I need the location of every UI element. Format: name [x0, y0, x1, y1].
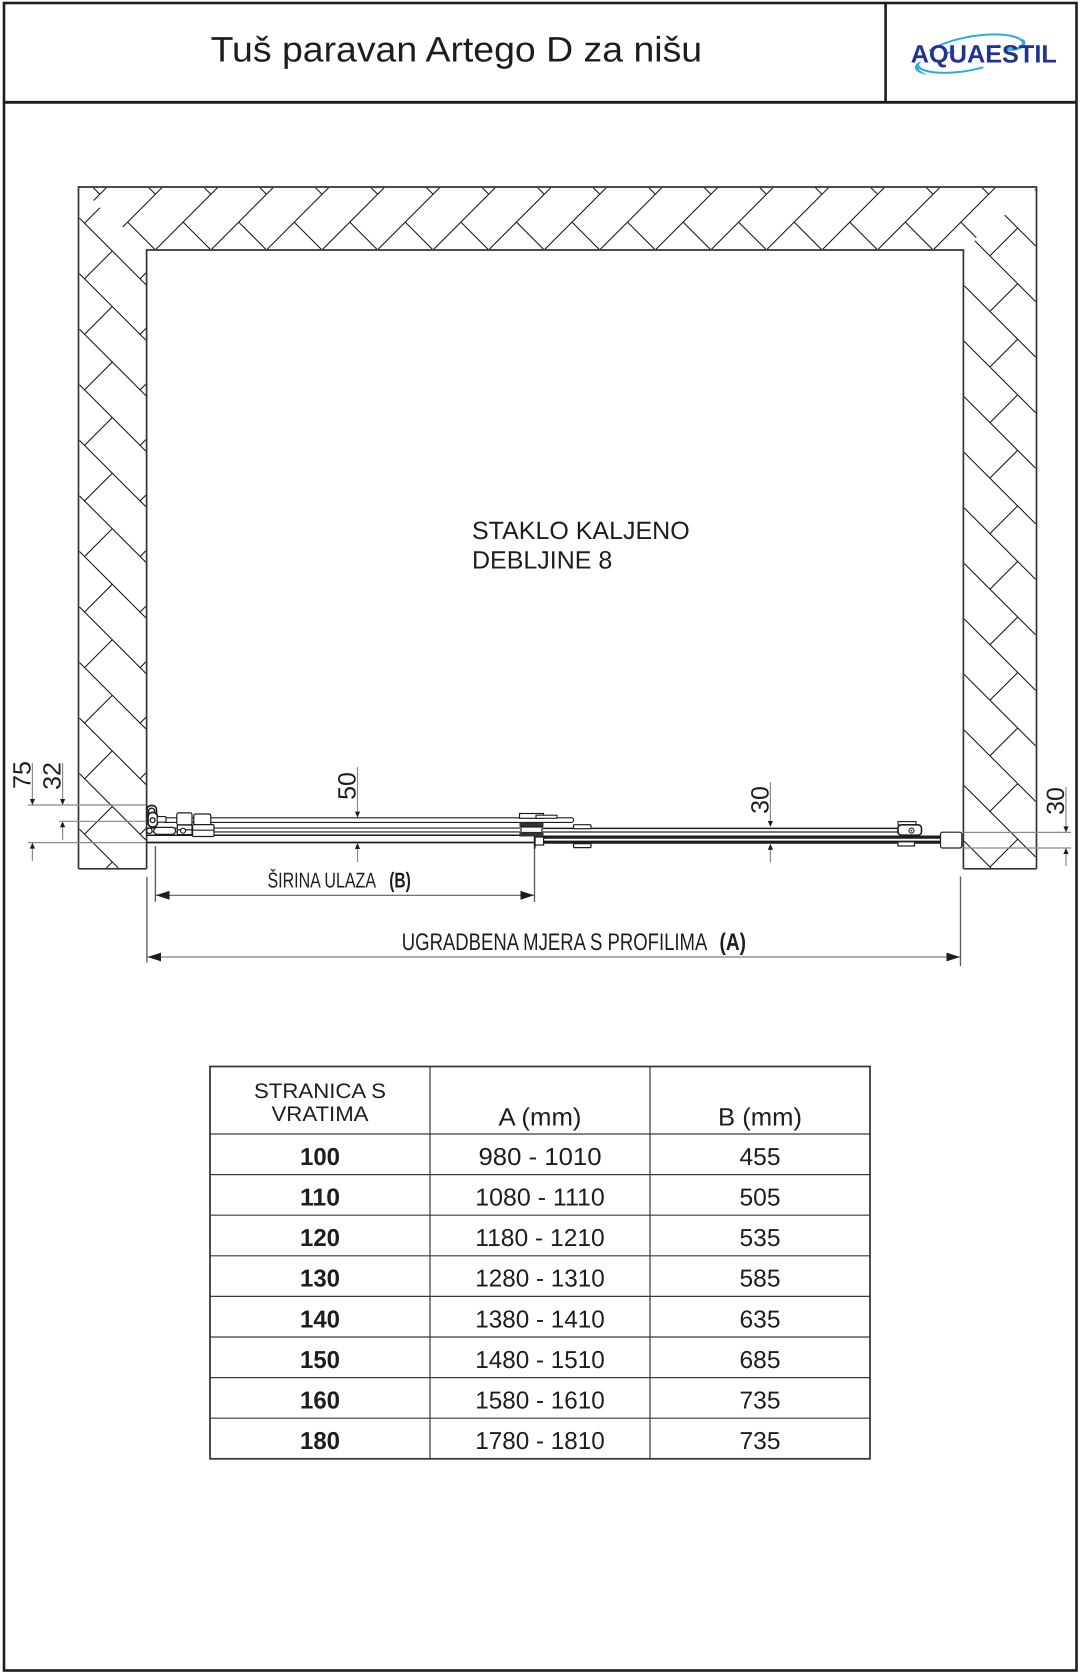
svg-text:1480 - 1510: 1480 - 1510	[475, 1347, 605, 1374]
svg-text:ŠIRINA ULAZA: ŠIRINA ULAZA	[268, 869, 377, 893]
svg-text:(A): (A)	[720, 929, 747, 956]
svg-text:Tuš paravan Artego D za nišu: Tuš paravan Artego D za nišu	[211, 30, 702, 70]
svg-text:1380 - 1410: 1380 - 1410	[475, 1306, 605, 1333]
svg-text:VRATIMA: VRATIMA	[272, 1103, 369, 1126]
svg-text:1080 - 1110: 1080 - 1110	[475, 1185, 605, 1212]
svg-text:1180 - 1210: 1180 - 1210	[475, 1225, 605, 1252]
svg-text:B (mm): B (mm)	[718, 1104, 802, 1132]
svg-text:STRANICA S: STRANICA S	[254, 1080, 386, 1103]
svg-text:635: 635	[740, 1306, 781, 1333]
svg-text:685: 685	[740, 1347, 781, 1374]
svg-text:585: 585	[740, 1266, 781, 1293]
svg-text:160: 160	[300, 1388, 340, 1415]
svg-text:130: 130	[300, 1266, 340, 1293]
svg-text:150: 150	[300, 1347, 340, 1374]
svg-text:735: 735	[740, 1388, 781, 1415]
svg-text:455: 455	[740, 1144, 781, 1171]
svg-text:1280 - 1310: 1280 - 1310	[475, 1266, 605, 1293]
svg-text:535: 535	[740, 1225, 781, 1252]
svg-text:1780 - 1810: 1780 - 1810	[475, 1428, 605, 1455]
svg-text:1580 - 1610: 1580 - 1610	[475, 1388, 605, 1415]
svg-text:110: 110	[300, 1185, 340, 1212]
svg-text:A (mm): A (mm)	[499, 1104, 582, 1132]
svg-text:140: 140	[300, 1306, 340, 1333]
svg-text:180: 180	[300, 1428, 340, 1455]
svg-text:STAKLO KALJENO: STAKLO KALJENO	[472, 517, 690, 545]
svg-text:DEBLJINE 8: DEBLJINE 8	[472, 547, 612, 575]
svg-text:100: 100	[300, 1144, 340, 1171]
svg-text:UGRADBENA MJERA S PROFILIMA: UGRADBENA MJERA S PROFILIMA	[402, 929, 708, 956]
svg-text:735: 735	[740, 1428, 781, 1455]
svg-text:AQUAESTIL: AQUAESTIL	[911, 41, 1057, 69]
svg-text:980 - 1010: 980 - 1010	[479, 1144, 602, 1171]
svg-text:(B): (B)	[389, 869, 411, 893]
svg-text:505: 505	[740, 1185, 781, 1212]
svg-text:120: 120	[300, 1225, 340, 1252]
